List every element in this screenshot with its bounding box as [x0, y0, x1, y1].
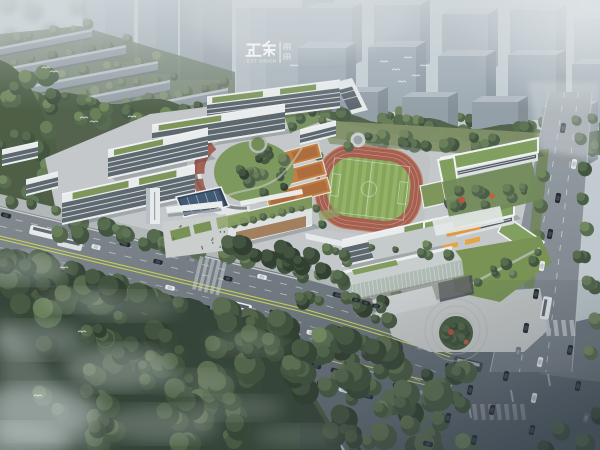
svg-text:EST VISION: EST VISION: [247, 59, 277, 64]
